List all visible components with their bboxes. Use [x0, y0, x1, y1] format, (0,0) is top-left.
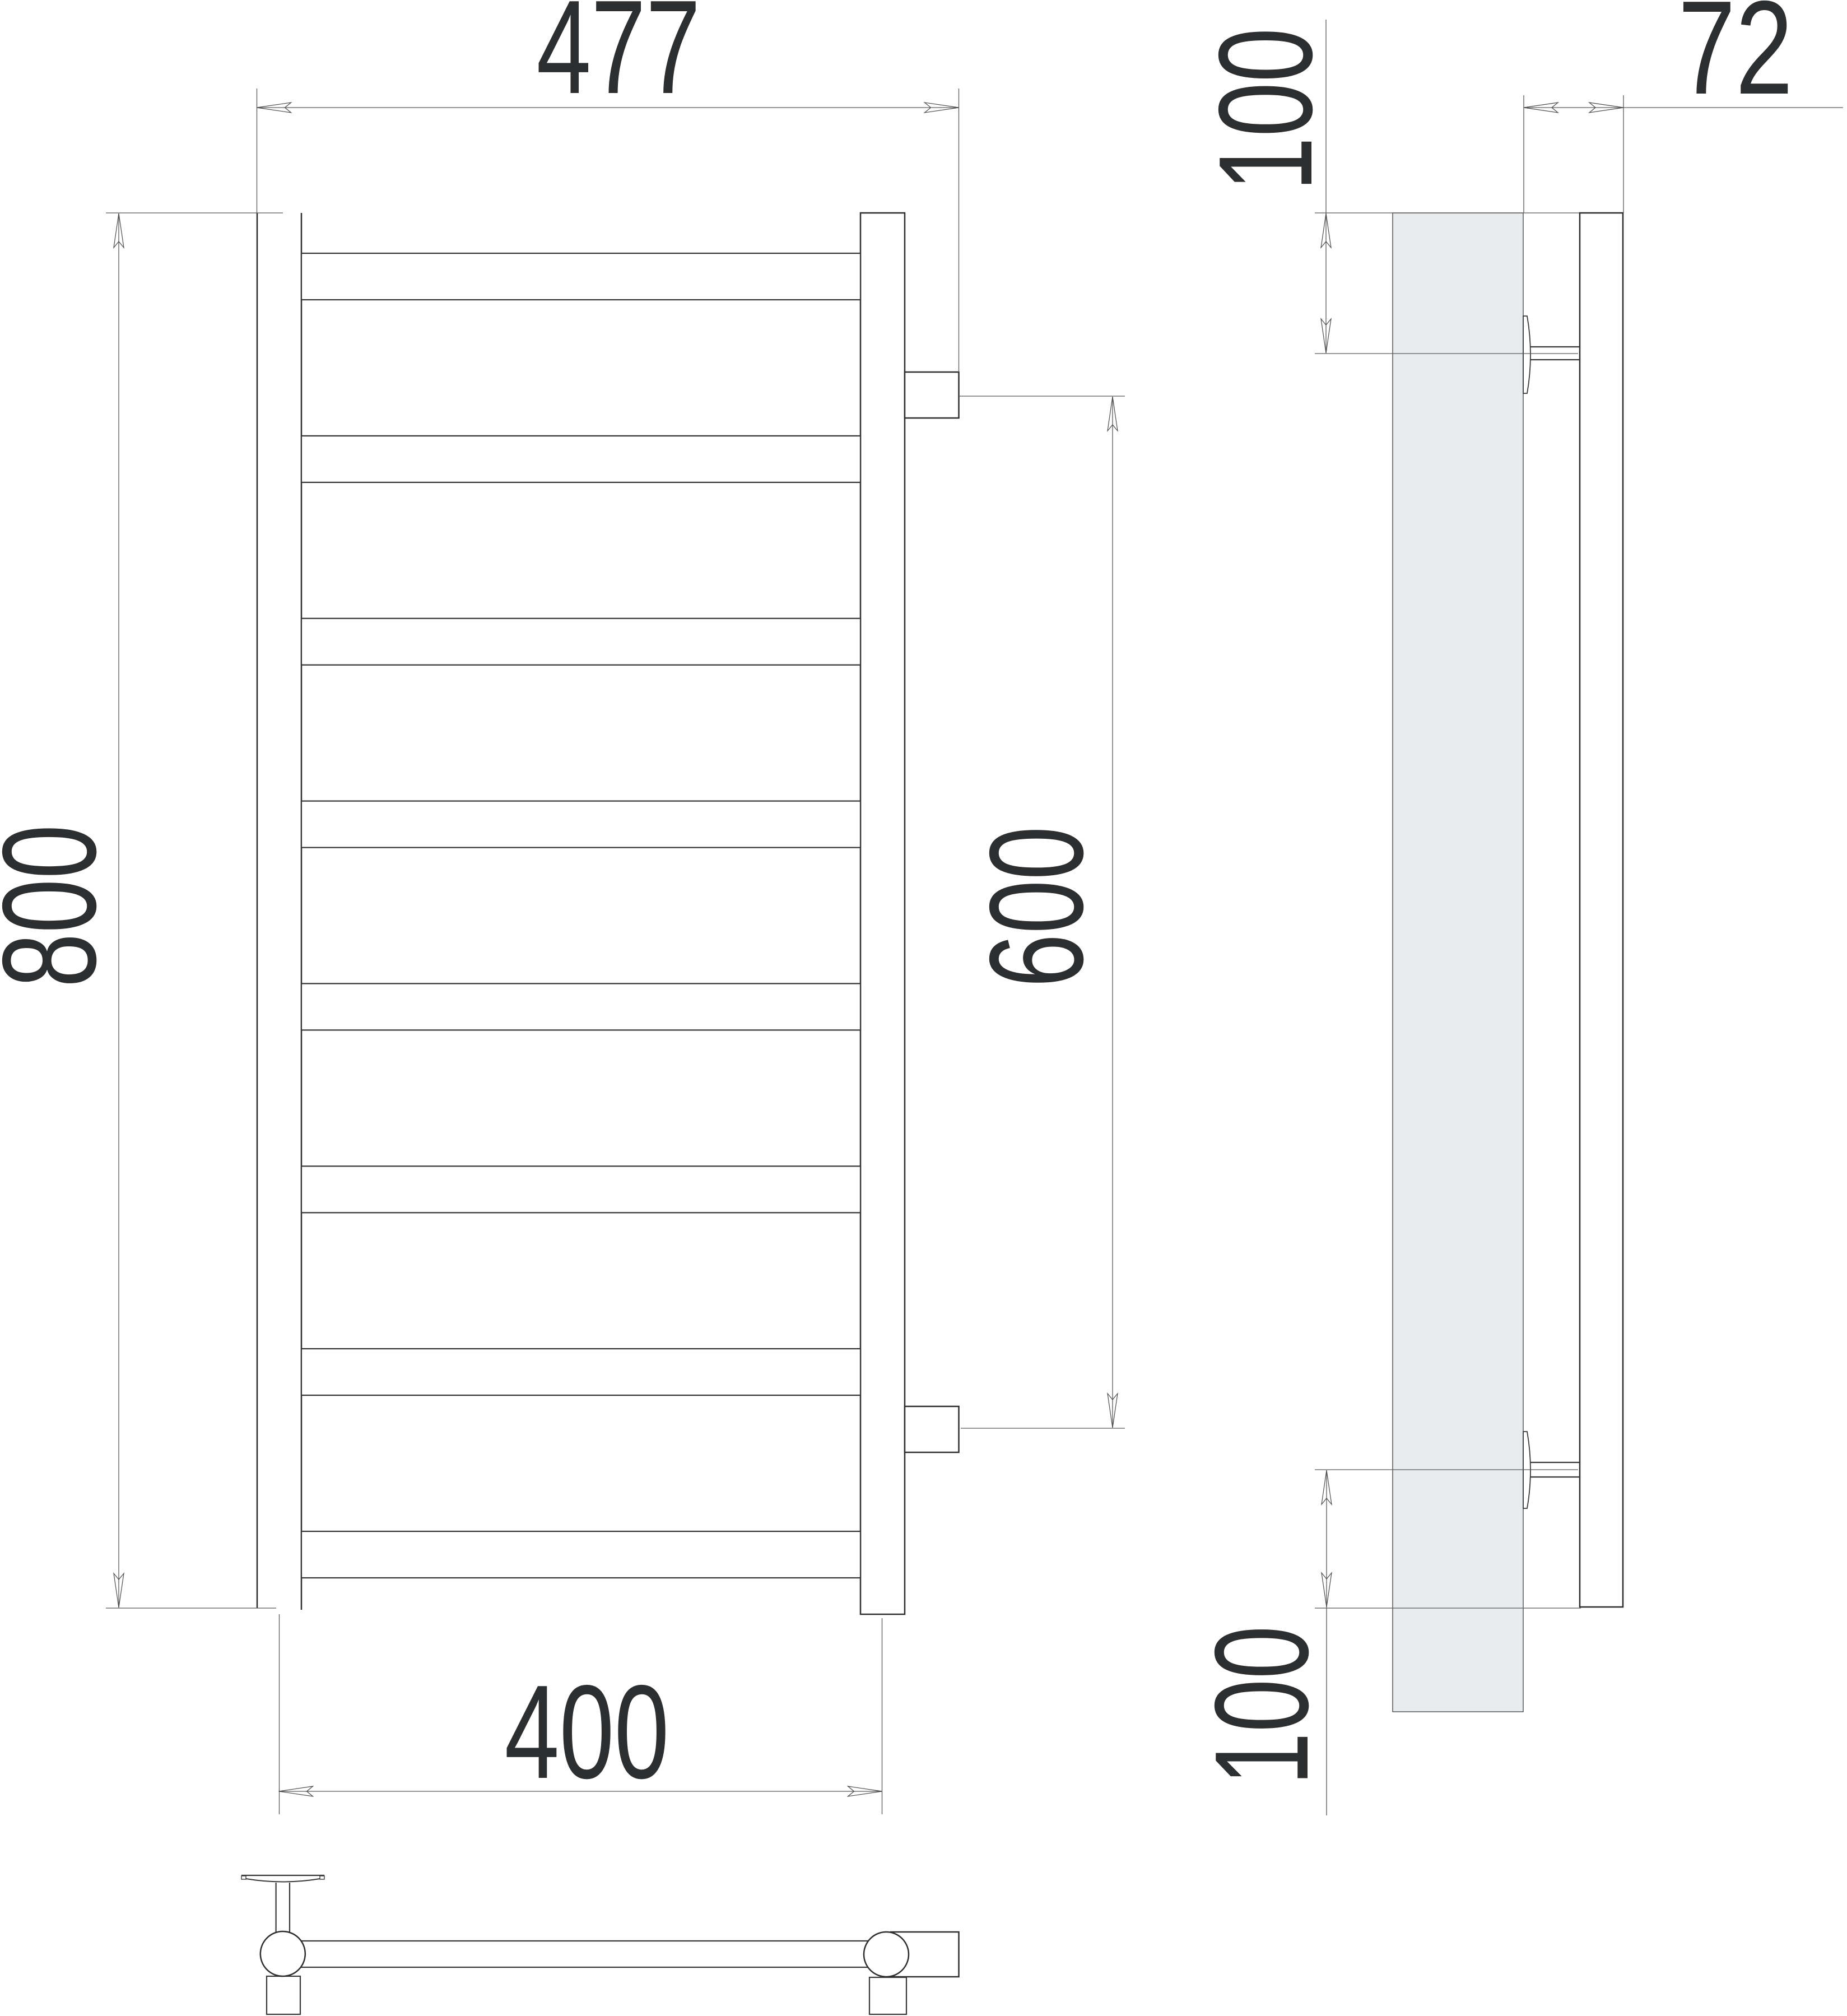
svg-text:800: 800 [0, 825, 124, 988]
svg-text:72: 72 [1678, 0, 1793, 122]
svg-text:400: 400 [505, 1658, 669, 1806]
svg-text:600: 600 [962, 826, 1111, 988]
svg-text:477: 477 [537, 0, 701, 122]
svg-text:100: 100 [1188, 1626, 1336, 1786]
svg-text:100: 100 [1192, 28, 1340, 192]
